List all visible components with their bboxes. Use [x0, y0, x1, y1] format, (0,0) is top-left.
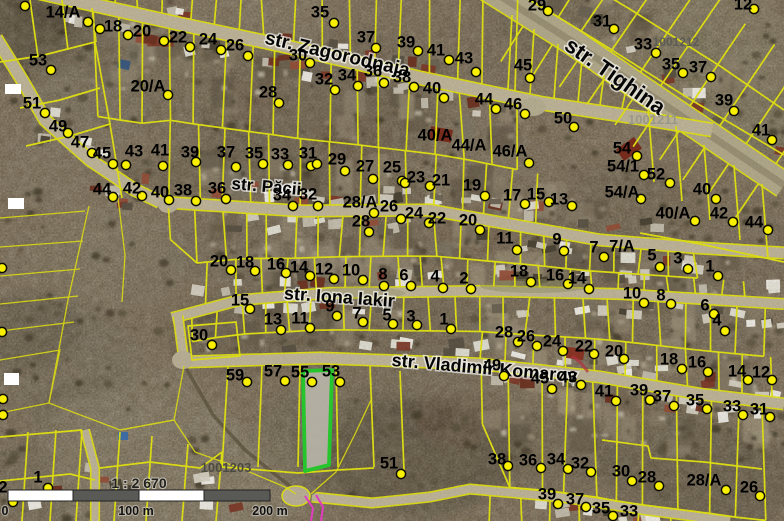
- svg-text:39: 39: [181, 144, 199, 162]
- svg-text:36: 36: [364, 63, 382, 81]
- svg-text:14: 14: [728, 363, 747, 381]
- svg-text:59: 59: [226, 367, 244, 385]
- svg-text:35: 35: [245, 145, 263, 163]
- svg-text:13: 13: [550, 191, 568, 209]
- svg-text:1: 1: [705, 258, 714, 276]
- svg-text:26: 26: [380, 198, 398, 216]
- svg-text:40: 40: [423, 80, 441, 98]
- svg-text:9: 9: [552, 231, 561, 249]
- svg-text:25: 25: [383, 159, 401, 177]
- svg-text:3: 3: [406, 308, 415, 326]
- svg-text:45: 45: [514, 57, 532, 75]
- svg-text:29: 29: [528, 0, 546, 15]
- svg-text:54/1: 54/1: [607, 158, 639, 176]
- svg-text:1001203: 1001203: [201, 460, 252, 475]
- svg-text:24: 24: [543, 333, 562, 351]
- svg-text:28: 28: [259, 84, 277, 102]
- svg-text:38: 38: [174, 182, 192, 200]
- svg-text:11: 11: [496, 230, 513, 248]
- svg-text:55: 55: [291, 364, 309, 382]
- svg-text:35: 35: [592, 500, 610, 518]
- svg-text:41: 41: [427, 42, 445, 60]
- svg-text:33: 33: [634, 36, 652, 54]
- svg-text:2: 2: [0, 479, 8, 497]
- svg-text:18: 18: [236, 254, 254, 272]
- svg-text:38: 38: [488, 451, 506, 469]
- svg-text:33: 33: [271, 146, 289, 164]
- svg-text:30: 30: [190, 327, 208, 345]
- svg-text:15: 15: [231, 292, 249, 310]
- svg-text:1: 1: [33, 469, 42, 487]
- svg-text:3: 3: [673, 250, 682, 268]
- svg-text:16: 16: [688, 354, 706, 372]
- svg-text:39: 39: [538, 486, 556, 504]
- svg-text:34: 34: [547, 451, 566, 469]
- svg-text:40/A: 40/A: [418, 127, 453, 145]
- svg-text:28: 28: [352, 213, 370, 231]
- svg-text:27: 27: [356, 158, 374, 176]
- svg-text:57: 57: [264, 363, 282, 381]
- svg-text:36: 36: [519, 452, 537, 470]
- svg-text:11: 11: [291, 310, 308, 328]
- svg-text:30: 30: [612, 463, 630, 481]
- svg-text:35: 35: [686, 392, 704, 410]
- svg-text:22: 22: [575, 338, 593, 356]
- svg-text:33: 33: [723, 398, 741, 416]
- svg-text:5: 5: [647, 247, 656, 265]
- svg-text:44: 44: [93, 181, 112, 199]
- svg-text:12: 12: [315, 261, 333, 279]
- svg-text:1 : 2 670: 1 : 2 670: [111, 475, 166, 491]
- svg-text:6: 6: [399, 267, 408, 285]
- svg-text:38: 38: [393, 69, 411, 87]
- svg-text:7: 7: [352, 305, 361, 323]
- svg-text:1001212: 1001212: [653, 35, 700, 49]
- svg-text:6: 6: [700, 297, 709, 315]
- svg-text:31: 31: [299, 145, 317, 163]
- svg-text:14: 14: [568, 270, 587, 288]
- svg-text:26: 26: [226, 37, 244, 55]
- svg-text:53: 53: [29, 52, 47, 70]
- svg-text:30: 30: [289, 47, 307, 65]
- svg-text:26: 26: [517, 328, 535, 346]
- svg-text:44: 44: [475, 91, 494, 109]
- svg-text:39: 39: [397, 34, 415, 52]
- svg-text:41: 41: [595, 383, 613, 401]
- svg-text:34: 34: [273, 187, 292, 205]
- svg-text:39: 39: [715, 92, 733, 110]
- svg-text:51: 51: [23, 95, 41, 113]
- svg-text:28/A: 28/A: [687, 472, 722, 490]
- svg-text:14: 14: [290, 259, 309, 277]
- svg-text:4: 4: [712, 312, 722, 330]
- svg-text:45: 45: [93, 145, 111, 163]
- svg-text:32: 32: [571, 455, 589, 473]
- svg-text:0: 0: [2, 504, 9, 518]
- svg-text:40: 40: [151, 184, 169, 202]
- svg-text:36: 36: [208, 180, 226, 198]
- svg-text:32: 32: [315, 71, 333, 89]
- svg-text:54: 54: [613, 140, 632, 158]
- svg-text:49: 49: [49, 118, 67, 136]
- svg-text:200 m: 200 m: [252, 504, 287, 518]
- svg-text:22: 22: [169, 29, 187, 47]
- svg-text:41: 41: [752, 122, 770, 140]
- svg-text:20/A: 20/A: [131, 78, 166, 96]
- svg-text:29: 29: [328, 151, 346, 169]
- svg-text:51: 51: [380, 455, 398, 473]
- svg-text:18: 18: [510, 263, 528, 281]
- svg-text:10: 10: [623, 285, 641, 303]
- svg-text:9: 9: [325, 298, 334, 316]
- svg-text:18: 18: [104, 18, 122, 36]
- svg-text:24: 24: [199, 31, 218, 49]
- svg-text:8: 8: [656, 287, 665, 305]
- svg-text:31: 31: [593, 13, 611, 31]
- svg-text:42: 42: [123, 180, 141, 198]
- svg-text:43: 43: [125, 143, 143, 161]
- svg-text:16: 16: [546, 267, 564, 285]
- svg-text:44: 44: [745, 214, 764, 232]
- svg-text:17: 17: [503, 187, 521, 205]
- svg-text:19: 19: [463, 177, 481, 195]
- svg-text:20: 20: [459, 212, 477, 230]
- svg-text:100 m: 100 m: [118, 504, 153, 518]
- svg-text:13: 13: [264, 311, 282, 329]
- svg-text:21: 21: [432, 172, 450, 190]
- svg-text:42: 42: [710, 205, 728, 223]
- svg-text:50: 50: [554, 110, 572, 128]
- svg-text:32: 32: [299, 186, 317, 204]
- svg-text:37: 37: [653, 388, 671, 406]
- svg-text:41: 41: [151, 142, 169, 160]
- svg-text:54/A: 54/A: [605, 184, 640, 202]
- svg-text:40: 40: [693, 181, 711, 199]
- svg-text:53: 53: [322, 363, 340, 381]
- svg-text:46: 46: [504, 96, 522, 114]
- svg-text:26: 26: [740, 479, 758, 497]
- svg-text:28: 28: [638, 469, 656, 487]
- svg-text:47: 47: [71, 134, 89, 152]
- svg-text:18: 18: [660, 351, 678, 369]
- svg-text:12: 12: [752, 364, 770, 382]
- svg-text:2: 2: [459, 270, 468, 288]
- svg-text:8: 8: [378, 266, 387, 284]
- svg-text:7/A: 7/A: [609, 238, 635, 256]
- svg-text:37: 37: [689, 59, 707, 77]
- svg-text:16: 16: [267, 256, 285, 274]
- svg-text:37: 37: [217, 144, 235, 162]
- svg-text:43: 43: [559, 369, 577, 387]
- svg-text:34: 34: [338, 67, 357, 85]
- svg-text:46/A: 46/A: [493, 143, 528, 161]
- svg-text:28/A: 28/A: [343, 194, 378, 212]
- svg-text:28: 28: [495, 324, 513, 342]
- svg-text:33: 33: [620, 503, 638, 521]
- svg-text:52: 52: [647, 166, 665, 184]
- svg-text:12: 12: [734, 0, 752, 14]
- svg-text:4: 4: [430, 268, 440, 286]
- svg-text:1: 1: [439, 311, 448, 329]
- svg-text:15: 15: [527, 186, 545, 204]
- svg-text:40/A: 40/A: [656, 205, 691, 223]
- svg-text:22: 22: [428, 210, 446, 228]
- svg-text:10: 10: [342, 262, 360, 280]
- svg-text:5: 5: [382, 307, 391, 325]
- svg-text:1001211: 1001211: [628, 112, 678, 127]
- svg-text:20: 20: [133, 23, 151, 41]
- svg-text:31: 31: [750, 401, 768, 419]
- svg-text:44/A: 44/A: [452, 137, 487, 155]
- svg-text:39: 39: [630, 382, 648, 400]
- svg-text:35: 35: [311, 4, 329, 22]
- svg-text:14/A: 14/A: [46, 4, 81, 22]
- svg-text:20: 20: [605, 343, 623, 361]
- svg-text:37: 37: [566, 491, 584, 509]
- svg-text:43: 43: [455, 50, 473, 68]
- svg-text:20: 20: [210, 253, 228, 271]
- svg-text:49: 49: [483, 357, 501, 375]
- svg-text:24: 24: [405, 205, 424, 223]
- svg-text:37: 37: [357, 29, 375, 47]
- svg-text:35: 35: [662, 56, 680, 74]
- svg-text:23: 23: [407, 169, 425, 187]
- svg-text:7: 7: [589, 239, 598, 257]
- svg-text:45: 45: [531, 370, 549, 388]
